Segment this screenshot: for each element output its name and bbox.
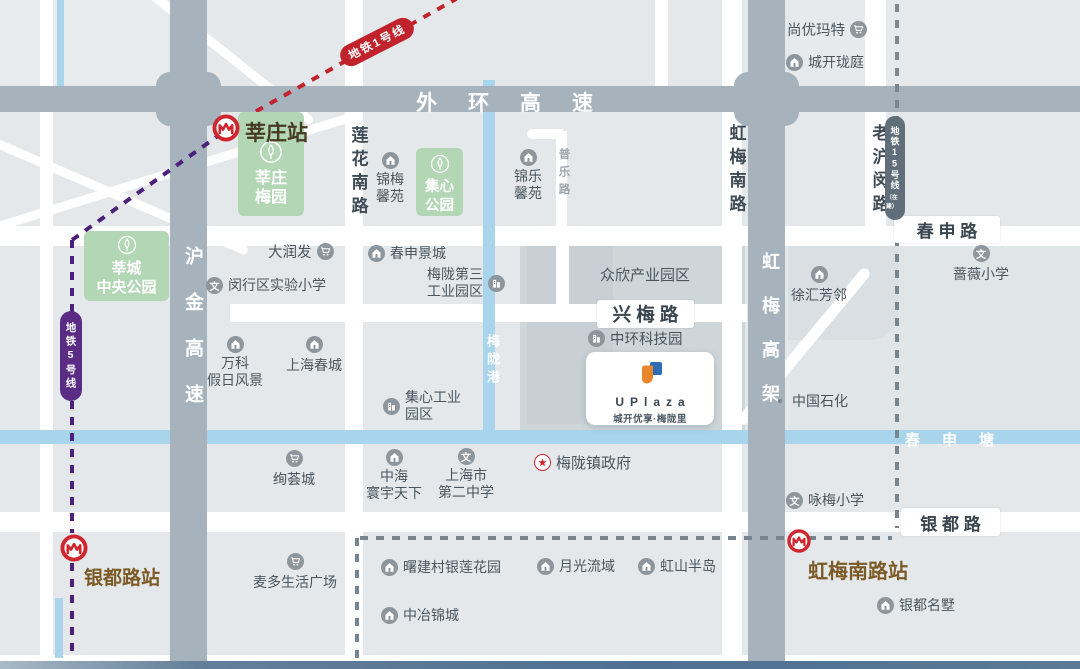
- home-icon: [368, 245, 385, 262]
- cart-icon: [287, 553, 304, 570]
- poi-meilong-zhengfu: 梅陇镇政府: [534, 452, 631, 473]
- road-label-xingmei: 兴 梅 路: [597, 300, 694, 328]
- home-icon: [381, 559, 398, 576]
- poi-chengkai-longting: 城开珑庭: [786, 52, 864, 72]
- poi-zhonghai: 中海寰宇天下: [363, 449, 425, 502]
- poi-label: 蔷薇小学: [953, 264, 1009, 284]
- location-map: 外环高速沪金高速虹梅高架莲花南路虹梅南路老沪闵路普乐路春 申 路兴 梅 路银 都…: [0, 0, 1080, 669]
- cart-icon: [850, 21, 867, 38]
- poi-label: 锦乐: [514, 168, 542, 185]
- junction-fillet: [156, 112, 170, 126]
- poi-qiangwei-xiaoxue: 文蔷薇小学: [946, 245, 1016, 284]
- junction-fillet: [207, 72, 221, 86]
- park-xincheng-zhongyang: 莘城中央公园: [84, 231, 169, 301]
- poi-shanghai-chuncheng: 上海春城: [284, 336, 344, 375]
- uplaza-wordmark: UPlaza: [609, 395, 690, 409]
- home-icon: [537, 558, 554, 575]
- poi-shujiancun: 曙建村银莲花园: [381, 557, 501, 577]
- river-northwest: [57, 0, 64, 86]
- road-label-chunshen: 春 申 路: [894, 216, 1000, 243]
- poi-label: 绚荟城: [273, 469, 315, 489]
- river-label-chunshentang: 春申塘: [905, 429, 1016, 450]
- poi-label: 上海市: [438, 467, 494, 484]
- poi-label: 闵行区实验小学: [228, 275, 326, 295]
- poi-chunshen-jingcheng: 春申景城: [368, 243, 446, 263]
- poi-label: 上海春城: [286, 355, 342, 375]
- home-icon: [786, 54, 803, 71]
- poi-label: 集心工业: [405, 389, 461, 406]
- industry-icon: [588, 330, 605, 347]
- poi-label: 咏梅小学: [808, 490, 864, 510]
- home-icon: [227, 336, 244, 353]
- metro-line5-dash-v2: [70, 401, 74, 533]
- poi-label: 春申景城: [390, 243, 446, 263]
- poi-jinle-xinyuan: 锦乐馨苑: [500, 149, 556, 202]
- school-icon: 文: [973, 245, 990, 262]
- city-block: [0, 0, 168, 84]
- poi-hongshan: 虹山半岛: [638, 556, 716, 576]
- school-icon: 文: [786, 492, 803, 509]
- poi-yindu-mingshu: 银都名墅: [877, 595, 955, 615]
- poi-meilong-disan: 梅陇第三工业园区: [427, 266, 505, 300]
- poi-zhonghuan-keji: 中环科技园: [588, 328, 683, 349]
- poi-zhongguo-shihua: 中国石化: [778, 391, 848, 411]
- poi-label: 众欣产业园区: [600, 264, 690, 285]
- dot-marker: [778, 399, 782, 403]
- metro-line15-dash-v1: [895, 4, 899, 118]
- poi-label: 梅陇第三: [427, 266, 483, 283]
- metro-line5-dash-v3: [70, 563, 74, 657]
- gov-icon: [534, 454, 551, 471]
- poi-jinmei-xinyuan: 锦梅馨苑: [362, 152, 418, 205]
- poi-label: 银都名墅: [899, 595, 955, 615]
- poi-label: 假日风景: [207, 372, 263, 389]
- poi-label: 徐汇芳邻: [791, 285, 847, 305]
- poi-label: 中环科技园: [610, 328, 683, 349]
- poi-xuhui-fanglin: 徐汇芳邻: [788, 266, 850, 305]
- station-yindulu: 银都路站: [84, 563, 160, 590]
- road-label-pule: 普乐路: [556, 148, 572, 201]
- station-xinzhuang: 莘庄站: [245, 117, 308, 147]
- home-icon: [877, 597, 894, 614]
- river-label-meilonggang: 梅陇港: [483, 334, 502, 388]
- uplaza-tagline: 城开优享·梅陇里: [613, 411, 687, 425]
- poi-label: 大润发: [268, 241, 312, 262]
- poi-label: 麦多生活广场: [253, 572, 337, 592]
- metro-logo-icon: [211, 113, 241, 148]
- road-pule-lower: [556, 246, 569, 305]
- poi-shangyoumate: 尚优玛特: [787, 19, 867, 40]
- poi-label: 中国石化: [792, 391, 848, 411]
- metro-line5-capsule: 地铁5号线: [60, 311, 82, 401]
- poi-label: 锦梅: [376, 171, 404, 188]
- poi-label: 馨苑: [514, 185, 542, 202]
- poi-label: 馨苑: [376, 188, 404, 205]
- poi-yongmei-xiaoxue: 文咏梅小学: [786, 490, 864, 510]
- poi-label: 园区: [405, 406, 461, 423]
- poi-maiduo: 麦多生活广场: [246, 553, 344, 592]
- expressway-label-waihuan: 外环高速: [416, 87, 624, 117]
- metro-line15-dash-v3: [355, 538, 359, 658]
- poi-label: 城开珑庭: [808, 52, 864, 72]
- school-icon: 文: [206, 277, 223, 294]
- home-icon: [520, 149, 537, 166]
- poi-label: 万科: [207, 355, 263, 372]
- home-icon: [638, 558, 655, 575]
- park-jixin-gongyuan: 集心公园: [416, 148, 463, 216]
- road-label-yindu: 银 都 路: [901, 508, 1000, 536]
- uplaza-logo-icon: [635, 360, 665, 393]
- metro-line15-dash-v2: [895, 222, 899, 528]
- poi-label: 尚优玛特: [787, 19, 845, 40]
- poi-label: 寰宇天下: [366, 485, 422, 502]
- home-icon: [811, 266, 828, 283]
- poi-label: 曙建村银莲花园: [403, 557, 501, 577]
- poi-yueguang: 月光流域: [537, 556, 615, 576]
- poi-minhang-shiyan-xiaoxue: 文闵行区实验小学: [206, 275, 326, 295]
- metro-line15-capsule: 地铁15号线（在建）: [885, 116, 905, 220]
- road-top-separator: [655, 0, 668, 86]
- road-label-hongmeinan: 虹梅南路: [724, 124, 749, 218]
- industry-icon: [488, 275, 505, 292]
- poi-xuanhui-cheng: 绚荟城: [262, 450, 326, 489]
- home-icon: [381, 607, 398, 624]
- poi-label: 中海: [366, 468, 422, 485]
- poi-label: 工业园区: [427, 283, 483, 300]
- poi-zhongye: 中冶锦城: [381, 605, 459, 625]
- project-uplaza-card: UPlaza城开优享·梅陇里: [586, 352, 714, 425]
- home-icon: [382, 152, 399, 169]
- station-hongmeinanlu: 虹梅南路站: [808, 555, 908, 584]
- leaf-icon: [430, 154, 450, 178]
- cart-icon: [286, 450, 303, 467]
- home-icon: [386, 449, 403, 466]
- metro-line5-dash-v1: [70, 240, 74, 312]
- poi-wanke: 万科假日风景: [202, 336, 268, 389]
- poi-label: 虹山半岛: [660, 556, 716, 576]
- school-icon: 文: [458, 448, 475, 465]
- river-southwest: [55, 598, 63, 658]
- poi-darunfa: 大润发: [268, 241, 334, 262]
- poi-label: 月光流域: [559, 556, 615, 576]
- poi-label: 梅陇镇政府: [556, 452, 631, 473]
- junction-fillet: [785, 112, 799, 126]
- leaf-icon: [117, 235, 137, 259]
- cart-icon: [317, 243, 334, 260]
- poi-jixin-gongye: 集心工业园区: [383, 389, 461, 423]
- poi-zhongxin: 众欣产业园区: [600, 264, 690, 285]
- poi-shanghai-dier: 文上海市第二中学: [434, 448, 498, 501]
- map-bottom-bar: [0, 661, 1080, 669]
- poi-label: 第二中学: [438, 484, 494, 501]
- poi-label: 中冶锦城: [403, 605, 459, 625]
- home-icon: [306, 336, 323, 353]
- metro-line15-dash-h: [360, 536, 892, 540]
- industry-icon: [383, 398, 400, 415]
